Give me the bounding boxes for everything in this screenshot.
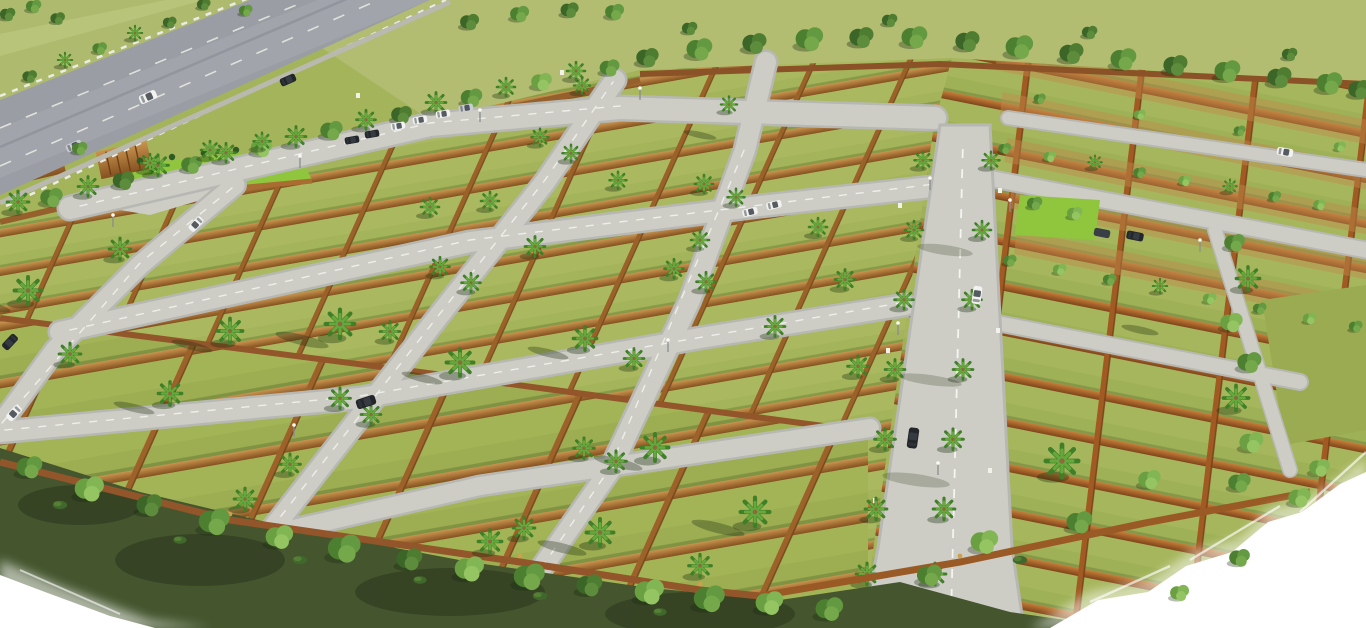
bush [653, 608, 666, 615]
lawn-patch [1015, 195, 1100, 240]
bush [293, 556, 307, 564]
bush [533, 592, 547, 600]
hero-banner [0, 0, 1366, 628]
bush [53, 501, 67, 509]
bush [1013, 556, 1027, 564]
bush [173, 536, 186, 543]
aerial-render [0, 0, 1366, 628]
bush [413, 576, 426, 583]
